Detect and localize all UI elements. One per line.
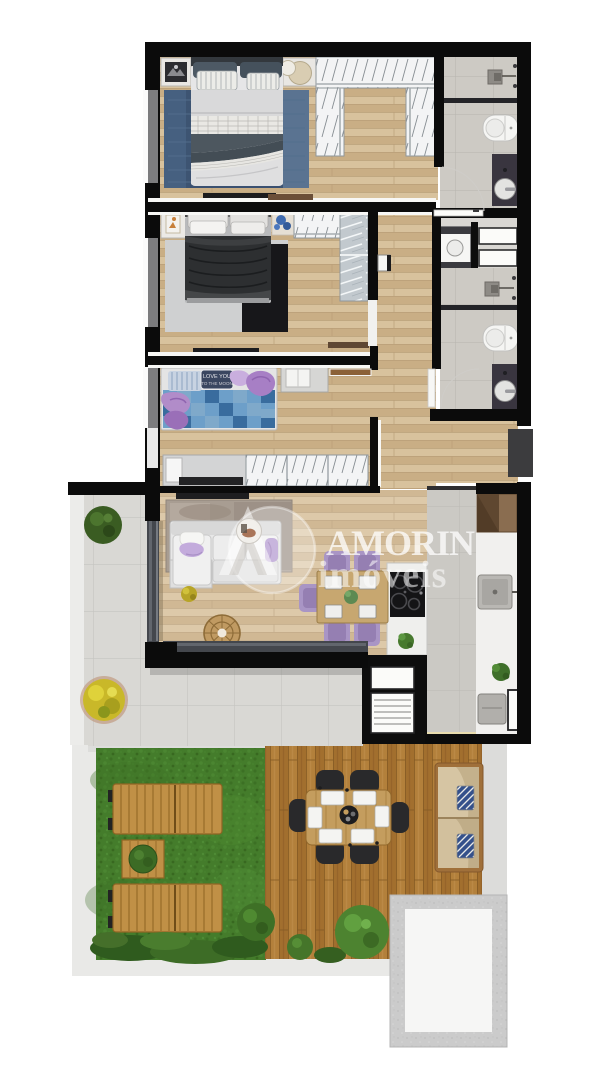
svg-text:LOVE YOU: LOVE YOU <box>203 374 231 380</box>
svg-text:TO THE MOON: TO THE MOON <box>201 381 233 386</box>
svg-text:imóveis: imóveis <box>318 554 447 596</box>
